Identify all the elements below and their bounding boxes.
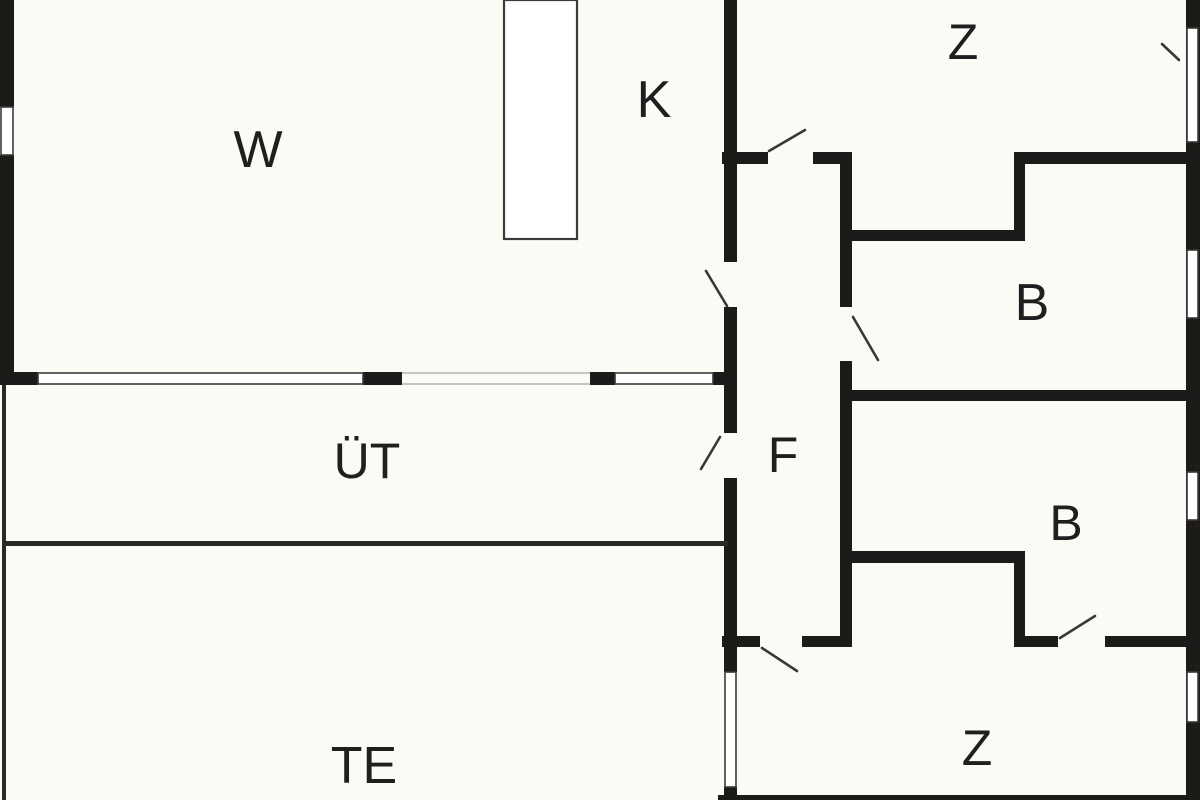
- f-east-wall-lower: [840, 361, 852, 647]
- window-z-top-east: [1187, 28, 1198, 142]
- f-west-wall-mid: [724, 307, 737, 433]
- z-top-south-wall-left-b: [813, 152, 852, 164]
- outer-bottom-wall-sliver: [718, 795, 1200, 800]
- z-top-south-wall-right: [1014, 152, 1200, 164]
- window-te-z-divider: [725, 672, 736, 787]
- room-label-f: F: [768, 427, 799, 483]
- w-south-wall-seg1: [0, 372, 38, 385]
- room-label-k: K: [637, 71, 672, 129]
- room-label-w: W: [233, 121, 282, 179]
- window-w-south-small: [615, 373, 713, 384]
- b-bottom-south-wall-a: [1014, 636, 1058, 647]
- floor-plan-canvas: WKZBÜTFBTEZ: [0, 0, 1200, 800]
- k-z-divider-wall: [724, 0, 737, 262]
- room-label-b-bottom: B: [1049, 495, 1082, 551]
- outer-left-wall-main: [0, 155, 14, 385]
- room-label-b-top: B: [1015, 274, 1050, 332]
- w-k-partition-column: [504, 0, 577, 239]
- f-east-wall-upper: [840, 164, 852, 307]
- f-south-wall-a: [722, 636, 760, 647]
- uet-te-divider-line: [2, 541, 728, 546]
- outer-left-wall-top: [0, 0, 14, 107]
- b-bottom-north-wall: [845, 551, 1018, 563]
- f-south-wall-b: [802, 636, 852, 647]
- window-z-bottom-east: [1187, 672, 1198, 722]
- w-south-wall-seg2: [363, 372, 402, 385]
- b-bottom-south-wall-b: [1105, 636, 1200, 647]
- b-top-north-wall: [845, 230, 1022, 241]
- window-w-west: [1, 107, 13, 155]
- b-top-south-wall: [845, 390, 1200, 401]
- w-south-wall-seg3: [590, 372, 615, 385]
- room-label-z-top: Z: [948, 14, 979, 70]
- z-top-south-wall-left-a: [722, 152, 768, 164]
- floor-plan: WKZBÜTFBTEZ: [0, 0, 1200, 800]
- window-b-top-east: [1187, 250, 1198, 318]
- room-label-uet: ÜT: [334, 433, 401, 489]
- room-label-z-bottom: Z: [962, 720, 993, 776]
- room-label-te: TE: [331, 737, 397, 795]
- window-w-south-large: [38, 373, 363, 384]
- b-bottom-step-wall: [1014, 551, 1025, 647]
- terrace-west-edge-line: [2, 385, 6, 800]
- window-b-bottom-east: [1187, 472, 1198, 520]
- b-top-north-step-wall: [1014, 152, 1025, 241]
